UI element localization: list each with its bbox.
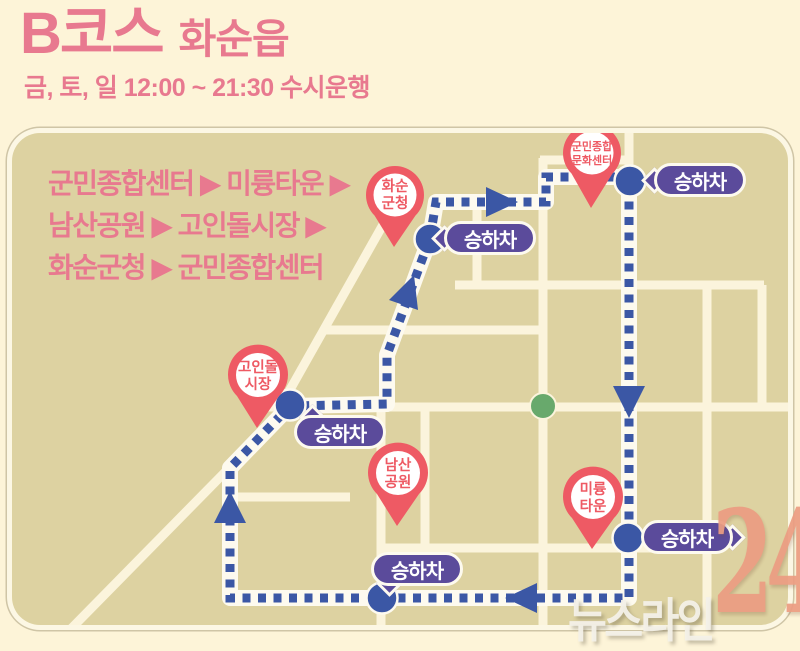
header: B코스 화순읍 금, 토, 일 12:00 ~ 21:30 수시운행 (20, 2, 370, 104)
schedule-text: 금, 토, 일 12:00 ~ 21:30 수시운행 (24, 68, 370, 104)
arrow-diagonal-up-icon (389, 275, 418, 310)
pin-label-line1: 고인돌 (238, 358, 278, 376)
poster-root: { "header": { "course": "B코스", "area": "… (0, 0, 800, 642)
badge-pill: 승하차 (444, 221, 536, 255)
pin-label-line2: 타운 (580, 498, 607, 515)
boarding-badge-goindol-market: 승하차 (294, 415, 386, 449)
pin-label-line1: 미륭 (580, 481, 607, 498)
pin-label-line1: 남산 (385, 457, 412, 474)
course-title: B코스 (20, 2, 163, 66)
route-summary-line2: 남산공원 ▶ 고인돌시장 ▶ (48, 205, 350, 247)
arrow-left-icon (505, 583, 537, 613)
boarding-badge-hwasun-gunchung: 승하차 (444, 221, 536, 255)
page-title: B코스 화순읍 (20, 2, 370, 66)
watermark-text: 뉴스라인 (568, 582, 713, 651)
boarding-badge-namsan-park: 승하차 (371, 552, 463, 586)
pin-label-line1: 화순 (382, 178, 409, 195)
badge-pill: 승하차 (294, 415, 386, 449)
boarding-badge-munhwa-center: 승하차 (654, 163, 746, 197)
pin-label-line2: 공원 (385, 474, 412, 491)
route-map-panel: 화순 군청 군민종합 문화센터 고인돌 시장 남산 공원 미륭 타운 (12, 133, 788, 625)
map-pin-munhwa-center: 군민종합 문화센터 (563, 133, 621, 208)
stop-dot-miryung-town (613, 523, 644, 554)
arrow-right-icon (486, 187, 518, 217)
badge-pill: 승하차 (371, 552, 463, 586)
pin-label-line2: 군청 (382, 195, 409, 212)
pin-label-line2: 시장 (245, 375, 272, 393)
park-dot-icon (530, 393, 556, 419)
badge-pill: 승하차 (654, 163, 746, 197)
watermark-number: 24 (712, 492, 800, 634)
arrow-down-icon (613, 386, 645, 418)
route-summary-line3: 화순군청 ▶ 군민종합센터 (48, 247, 350, 289)
route-summary-line1: 군민종합센터 ▶ 미륭타운 ▶ (48, 163, 350, 205)
pin-label-line1: 군민종합 (572, 139, 612, 153)
pin-label-line2: 문화센터 (572, 153, 612, 167)
area-title: 화순읍 (179, 5, 289, 65)
route-summary: 군민종합센터 ▶ 미륭타운 ▶ 남산공원 ▶ 고인돌시장 ▶ 화순군청 ▶ 군민… (48, 163, 350, 289)
pin-inner-circle (571, 133, 614, 175)
